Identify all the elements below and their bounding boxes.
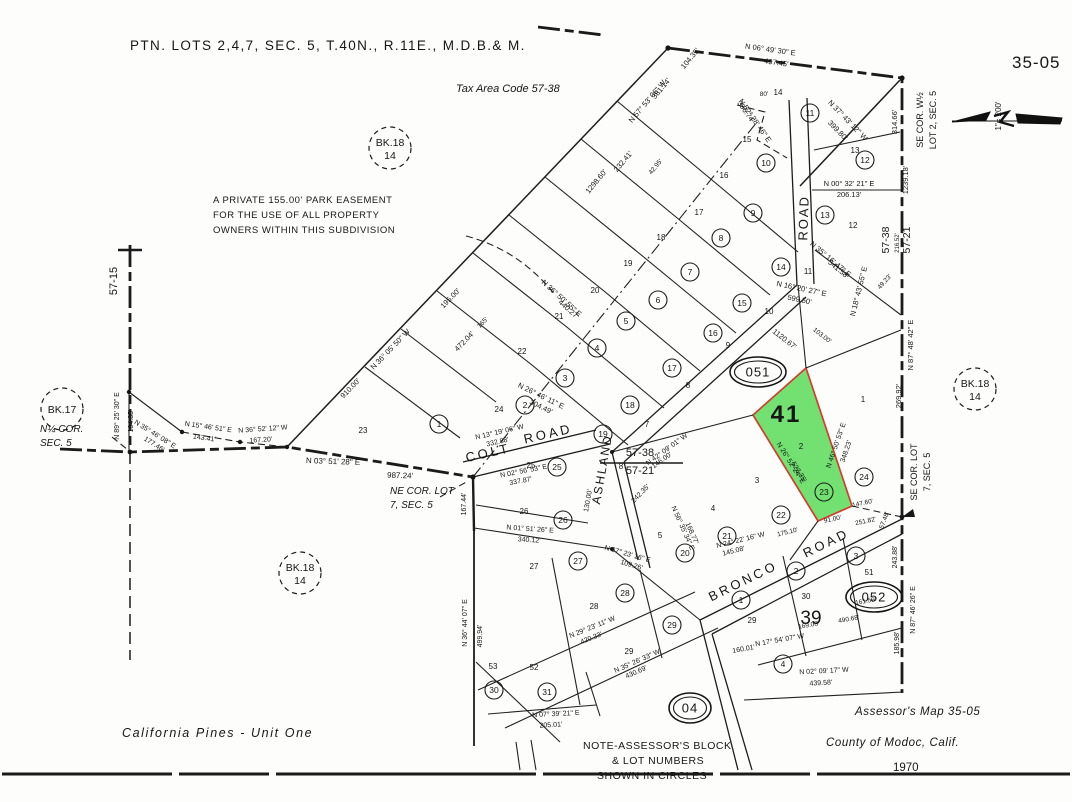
assessor-lot-number: 3 [563,373,568,383]
road-name-label: ROAD [795,195,812,241]
survey-dimension-label: N 87° 46' 26" E [909,586,917,634]
survey-dimension-label: 167.20' [249,436,272,445]
survey-dimension-label: N 87° 48' 42" E [906,320,915,371]
survey-dimension-label: N 15° 46' 51" E [184,420,232,435]
survey-dimension-label: 1239.18' [901,165,910,194]
survey-dimension-label: 195.00' [438,286,462,310]
park-easement-note: OWNERS WITHIN THIS SUBDIVISION [213,225,395,236]
survey-dimension-label: 103.00' [811,327,832,346]
assessor-lot-number: 28 [620,588,630,598]
survey-dimension-label: 987.24' [387,471,414,481]
monument-dot [899,75,904,80]
scale-bar-block [1016,114,1062,124]
monument-dot [238,440,242,444]
assessor-lot-number: 13 [820,210,830,220]
lot-number: 1 [861,395,866,404]
map-credit-title: Assessor's Map 35-05 [854,706,980,718]
survey-dimension-label: 251.82' [855,516,877,527]
survey-dimension-label: N 17° 54' 07" W [755,632,805,649]
lot-line-colt-south [476,505,588,523]
assessor-lot-number: 4 [781,659,786,669]
lot-number: 14 [774,88,783,97]
lot-number: 24 [495,405,504,414]
block-39-number: 39 [800,608,821,629]
lot-number: 5 [658,531,663,540]
survey-dimension-label: N 36° 52' 12" W [238,423,288,434]
sheet-number: 35-05 [1012,53,1060,72]
quarter-corner-note: N¼ COR. [40,423,83,435]
lot-number: 8 [686,381,691,390]
block-number: 04 [682,701,698,716]
lot-number: 3 [755,476,760,485]
survey-dimension-label: 1298.60' [583,167,609,195]
se-corner-arrow [902,509,915,517]
northeast-corner-line [800,80,900,186]
survey-dimension-label: 242.35' [631,483,652,504]
ne-corner-note: NE COR. LOT [390,486,455,497]
assessor-lot-number: 1 [739,595,744,605]
lot-lines-upper-fan [365,101,798,445]
assessor-lot-number: 18 [625,400,635,410]
lot-number: 21 [555,312,564,321]
north-road-edges [789,98,814,285]
block-number: 051 [746,365,771,380]
assessor-lot-number: 10 [761,158,771,168]
lot-number: 52 [530,663,539,672]
survey-dimension-label: 439.58' [809,679,832,687]
survey-dimension-label: 185.98' [894,632,901,655]
assessor-lot-number: 8 [719,233,724,243]
survey-dimension-label: N 36° 05' 50" W [369,326,413,371]
road-name-label: ROAD [522,421,574,447]
survey-dimension-label: N 01° 51' 26" E [506,523,554,534]
lot-number: 20 [591,286,600,295]
ne-corner-note: 7, SEC. 5 [390,500,433,511]
lot-number: 8 [619,462,624,471]
assessor-lot-number: 7 [688,267,693,277]
assessor-lot-number: 3 [854,551,859,561]
monument-dot [470,474,475,479]
lot-number: 11 [804,267,813,276]
survey-dimension-label: 314.66' [890,109,899,134]
survey-dimension-label: 205.01' [539,721,562,729]
bronco-road-edges [700,519,902,770]
assessor-lot-number: 27 [573,556,583,566]
survey-dimension-label: 1"= 200' [994,101,1003,131]
assessor-lot-number: 16 [708,328,718,338]
survey-dimension-label: 49.23' [876,273,893,291]
map-credit-year: 1970 [893,762,919,774]
assessor-lot-number: 15 [737,298,747,308]
label-layer: N 06° 49' 30" E497.45'N 57° 53' 06" W381… [40,38,1060,782]
survey-dimension-label: 206.13' [837,190,862,199]
book-reference-label: BK.18 [376,137,405,149]
book-reference-label: 14 [384,150,396,162]
lot-number: 29 [748,616,757,625]
survey-dimension-label: 348.23' [840,440,854,464]
book-reference-label: BK.18 [286,562,315,574]
survey-dimension-label: 194.35' [128,410,135,433]
survey-dimension-label: 497.45' [764,56,790,68]
survey-dimension-label: 340.12' [518,536,541,545]
se-corner-lot7-note: 7, SEC. 5 [922,453,932,492]
assessor-lot-number: 11 [806,108,815,118]
survey-dimension-label: 232.41' [612,149,635,174]
book-reference-label: BK.17 [48,404,77,416]
assessor-lot-number: 9 [751,208,756,218]
survey-dimension-label: 160.01' [732,644,756,655]
assessor-lot-number: 20 [680,548,690,558]
lot-number: 19 [624,259,633,268]
assessor-lot-number: 14 [776,262,786,272]
monument-dot [128,450,133,455]
se-corner-w2-note: LOT 2, SEC. 5 [928,91,938,149]
assessor-note-line2: & LOT NUMBERS [612,755,704,767]
monument-dot [285,445,289,449]
survey-dimension-label: 147.60' [852,498,874,509]
assessor-lot-number: 1 [437,419,442,429]
map-credit-county: County of Modoc, Calif. [826,737,959,749]
block-number: 052 [862,590,887,605]
survey-dimension-label: 143.41' [192,433,216,443]
survey-dimension-label: 490.68' [838,614,860,625]
assessor-lot-number: 31 [542,687,552,697]
road-name-label: ASHLAND [589,433,615,505]
assessor-lot-number: 26 [558,515,568,525]
lot-number: 25 [527,461,536,470]
survey-dimension-label: 57-21 [901,226,913,253]
block-centerline [473,122,757,477]
survey-dimension-label: 269.92' [894,383,903,408]
book-reference-label: 14 [969,391,981,403]
survey-dimension-label: 57-38 [880,226,892,253]
assessor-lot-number: 25 [552,462,562,472]
lot-lines-southwest-block [474,528,718,770]
highlighted-parcel-number: 41 [771,401,802,428]
book-reference-label: 14 [294,575,306,587]
assessor-lot-number: 23 [819,487,829,497]
lot-number: 2 [799,442,804,451]
survey-dimension-label: 499.94' [477,625,484,648]
se-corner-lot7-note: SE COR. LOT [909,443,919,501]
lot-number: 12 [849,221,858,230]
survey-dimension-label: 175.10' [777,527,799,539]
park-easement-note: FOR THE USE OF ALL PROPERTY [213,210,380,221]
park-easement-note: A PRIVATE 155.00' PARK EASEMENT [213,195,392,206]
assessor-lot-number: 17 [667,363,677,373]
lot-number: 23 [359,426,368,435]
lot-number: 29 [625,647,634,656]
lot-number: 22 [518,347,527,356]
survey-dimension-label: 243.88' [892,546,899,569]
lot-number: 17 [695,208,704,217]
assessor-note-line1: NOTE-ASSESSOR'S BLOCK [583,740,731,752]
assessor-lot-number: 2 [523,400,528,410]
survey-dimension-label: N 06° 49' 30" E [745,42,797,58]
assessor-lot-number: 29 [667,620,677,630]
survey-dimension-label: 1120.67' [771,327,799,352]
survey-dimension-label: 80' [760,91,768,98]
assessor-lot-number: 5 [624,316,629,326]
scale-bar [952,112,1062,126]
assessor-map-page: N 06° 49' 30" E497.45'N 57° 53' 06" W381… [0,0,1072,802]
lot-number: 7 [645,420,650,429]
lot-number: 27 [530,562,539,571]
se-corner-w2-note: SE COR. W½ [915,92,925,148]
survey-dimension-label: 42.95' [648,158,665,176]
lot-number: 30 [802,592,811,601]
assessor-lot-number: 22 [776,510,786,520]
lot-number: 10 [765,307,774,316]
assessor-lot-number: 12 [860,155,870,165]
lot-number: 28 [590,602,599,611]
map-title: PTN. LOTS 2,4,7, SEC. 5, T.40N., R.11E.,… [130,38,526,53]
assessor-lot-number: 6 [656,295,661,305]
survey-dimension-label: 167.44' [461,493,468,516]
lot-number: 16 [720,171,729,180]
assessor-lot-number: 4 [595,343,600,353]
assessor-lot-number: 24 [859,472,869,482]
survey-dimension-label: 472.04' [452,329,476,353]
book-reference-label: BK.18 [961,378,990,390]
survey-dimension-label: N 03° 51' 28" E [306,456,361,467]
tax-area-code: Tax Area Code 57-38 [456,83,561,95]
survey-dimension-label: 165' [476,316,489,330]
monument-dot [665,45,670,50]
lot-number: 53 [489,662,498,671]
survey-dimension-label: N 36° 44' 07" E [461,599,469,647]
survey-dimension-label: N 02° 09' 17" W [799,666,849,677]
lot-number: 4 [711,504,716,513]
survey-dimension-label: 57-21 [626,465,654,477]
assessor-lot-number: 21 [722,531,732,541]
assessor-note-line3: SHOWN IN CIRCLES [597,770,707,782]
survey-dimension-label: 337.87' [509,476,533,487]
lot-number: 51 [865,568,874,577]
lot-number: 15 [743,135,752,144]
survey-dimension-label: N 07° 39' 21" E [532,709,580,719]
subdivision-name: California Pines - Unit One [122,726,313,740]
survey-dimension-label: 57.48' [878,511,891,530]
survey-dimension-label: 57-15 [108,267,120,295]
assessor-lot-number: 30 [489,685,499,695]
quarter-corner-note: SEC. 5 [40,438,72,449]
monument-dot [180,430,184,434]
monument-dot [127,390,131,394]
lot-number: 26 [520,507,529,516]
north-arrow-icon [952,112,990,122]
assessor-lot-number: 2 [794,566,799,576]
assessor-map-canvas: N 06° 49' 30" E497.45'N 57° 53' 06" W381… [0,0,1072,802]
survey-dimension-label: N 89° 25' 30" E [113,392,121,440]
lot-number: 9 [726,341,731,350]
lot-number: 18 [657,233,666,242]
survey-dimension-label: N 00° 32' 21" E [824,179,875,188]
